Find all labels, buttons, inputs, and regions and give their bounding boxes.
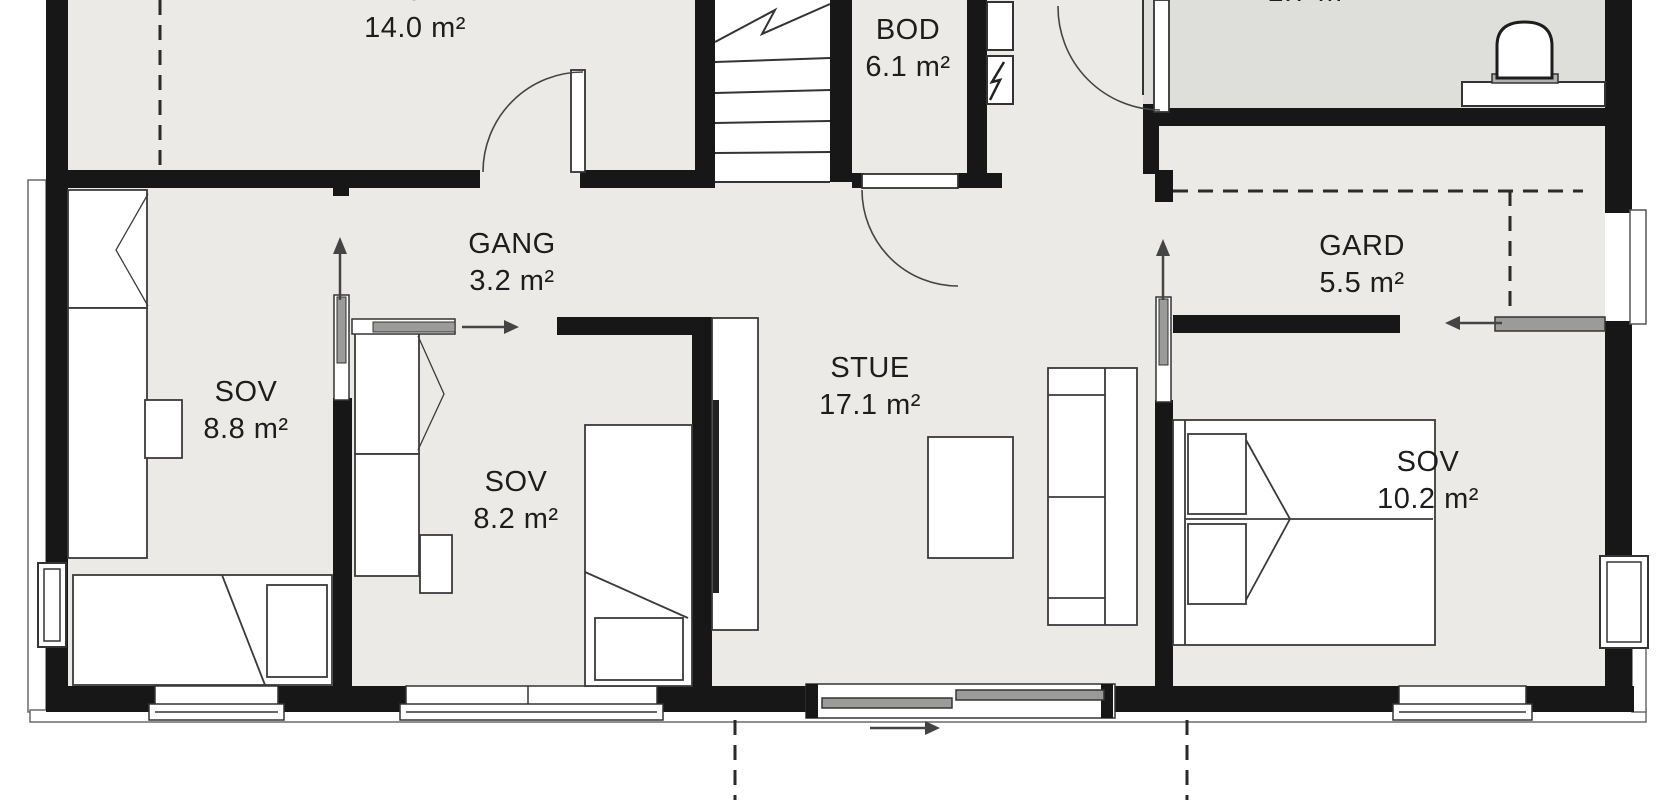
room-label-bod-large: BOD14.0 m² xyxy=(364,0,466,47)
wardrobe xyxy=(355,454,419,576)
room-label-sov-3: SOV10.2 m² xyxy=(1377,444,1479,518)
window-sov2 xyxy=(400,686,663,720)
nightstand xyxy=(145,400,182,458)
room-label-gard: GARD5.5 m² xyxy=(1319,228,1405,302)
pillow xyxy=(1188,434,1246,514)
pillow xyxy=(267,585,327,677)
sliding-door xyxy=(1156,297,1171,402)
window-right xyxy=(1600,556,1648,648)
window-sov1 xyxy=(149,686,284,720)
sliding-door xyxy=(334,295,349,400)
sliding-door xyxy=(1495,317,1605,331)
entry-direction-arrow-icon xyxy=(870,721,940,735)
room-label-bod-small: BOD6.1 m² xyxy=(865,12,950,86)
room-label-wc: 1.7 m² xyxy=(1267,0,1352,11)
sliding-door xyxy=(352,319,455,334)
sofa xyxy=(1048,368,1137,625)
wardrobe xyxy=(68,308,147,558)
window-left xyxy=(38,563,66,647)
pillow xyxy=(1188,524,1246,604)
tv xyxy=(713,400,719,593)
room-label-gang: GANG3.2 m² xyxy=(468,226,555,300)
floor-plan: BOD14.0 m² BOD6.1 m² 1.7 m² GANG3.2 m² G… xyxy=(0,0,1670,800)
window-sov3 xyxy=(1393,686,1532,720)
wardrobe xyxy=(68,190,147,308)
room-label-stue: STUE17.1 m² xyxy=(819,350,921,424)
nightstand xyxy=(420,535,452,593)
patio-sliding-door xyxy=(806,684,1115,718)
vanity-counter xyxy=(1462,82,1605,106)
coffee-table xyxy=(928,437,1013,558)
toilet-icon xyxy=(1497,22,1552,78)
room-label-sov-2: SOV8.2 m² xyxy=(473,464,558,538)
wardrobe xyxy=(355,332,419,454)
entry-door xyxy=(1605,210,1646,324)
pillow xyxy=(595,618,683,680)
room-label-sov-1: SOV8.8 m² xyxy=(203,374,288,448)
